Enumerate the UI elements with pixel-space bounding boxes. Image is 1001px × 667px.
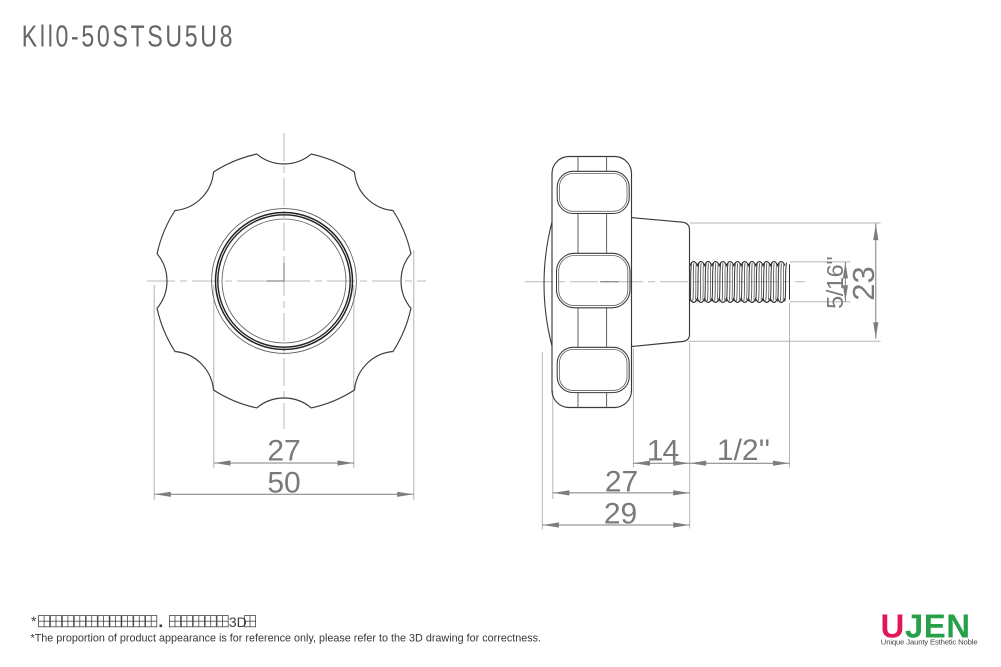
svg-text:1/2'': 1/2'' (717, 434, 770, 467)
svg-text:27: 27 (605, 465, 638, 498)
svg-text:*: * (31, 613, 37, 629)
svg-text:50: 50 (267, 467, 300, 500)
svg-text:14: 14 (647, 435, 679, 468)
svg-text:5/16'': 5/16'' (822, 257, 848, 309)
svg-text:Kll0-50STSU5U8: Kll0-50STSU5U8 (22, 18, 235, 53)
svg-text:*The proportion of product app: *The proportion of product appearance is… (31, 633, 542, 645)
svg-text:23: 23 (846, 266, 881, 300)
svg-text:27: 27 (267, 435, 300, 468)
svg-text:29: 29 (604, 498, 637, 531)
svg-text:Unique Jaunty Esthetic Noble: Unique Jaunty Esthetic Noble (881, 638, 978, 647)
